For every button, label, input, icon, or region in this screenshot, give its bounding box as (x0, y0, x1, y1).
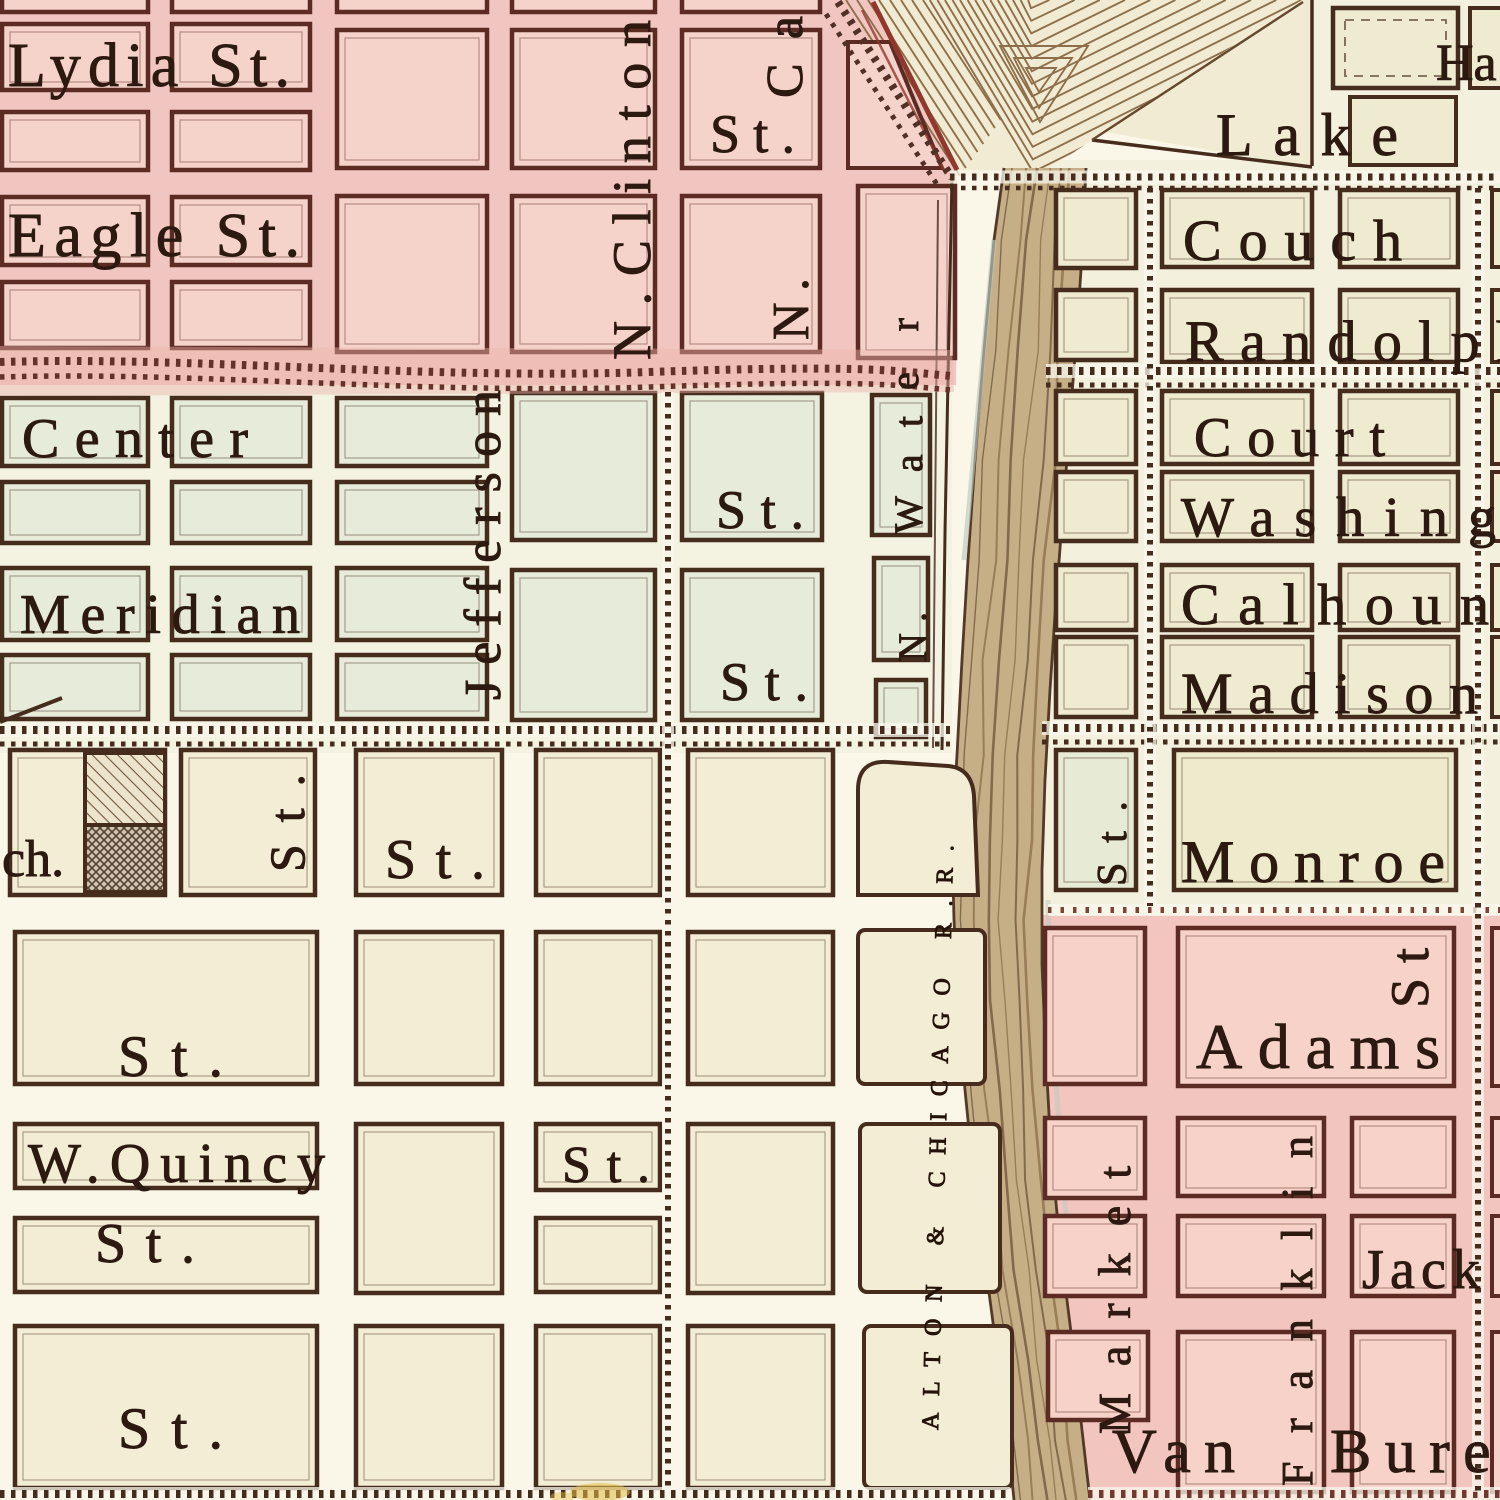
svg-text:St.: St. (710, 104, 795, 164)
svg-text:N.: N. (890, 612, 935, 662)
svg-text:Buren: Buren (1330, 1418, 1500, 1486)
svg-text:Jefferson: Jefferson (455, 390, 512, 700)
svg-text:St.: St. (716, 480, 804, 540)
svg-text:St.: St. (720, 652, 808, 712)
svg-text:St: St (1380, 948, 1440, 1008)
svg-text:Jack: Jack (1362, 1239, 1480, 1301)
svg-text:N.: N. (763, 278, 820, 340)
svg-text:St.: St. (562, 1137, 650, 1194)
svg-text:Ha: Ha (1436, 35, 1497, 92)
svg-text:W.Quincy: W.Quincy (28, 1133, 325, 1195)
svg-text:Meridian: Meridian (20, 584, 300, 646)
svg-text:Van: Van (1112, 1418, 1235, 1486)
svg-text:ch.: ch. (2, 831, 64, 888)
